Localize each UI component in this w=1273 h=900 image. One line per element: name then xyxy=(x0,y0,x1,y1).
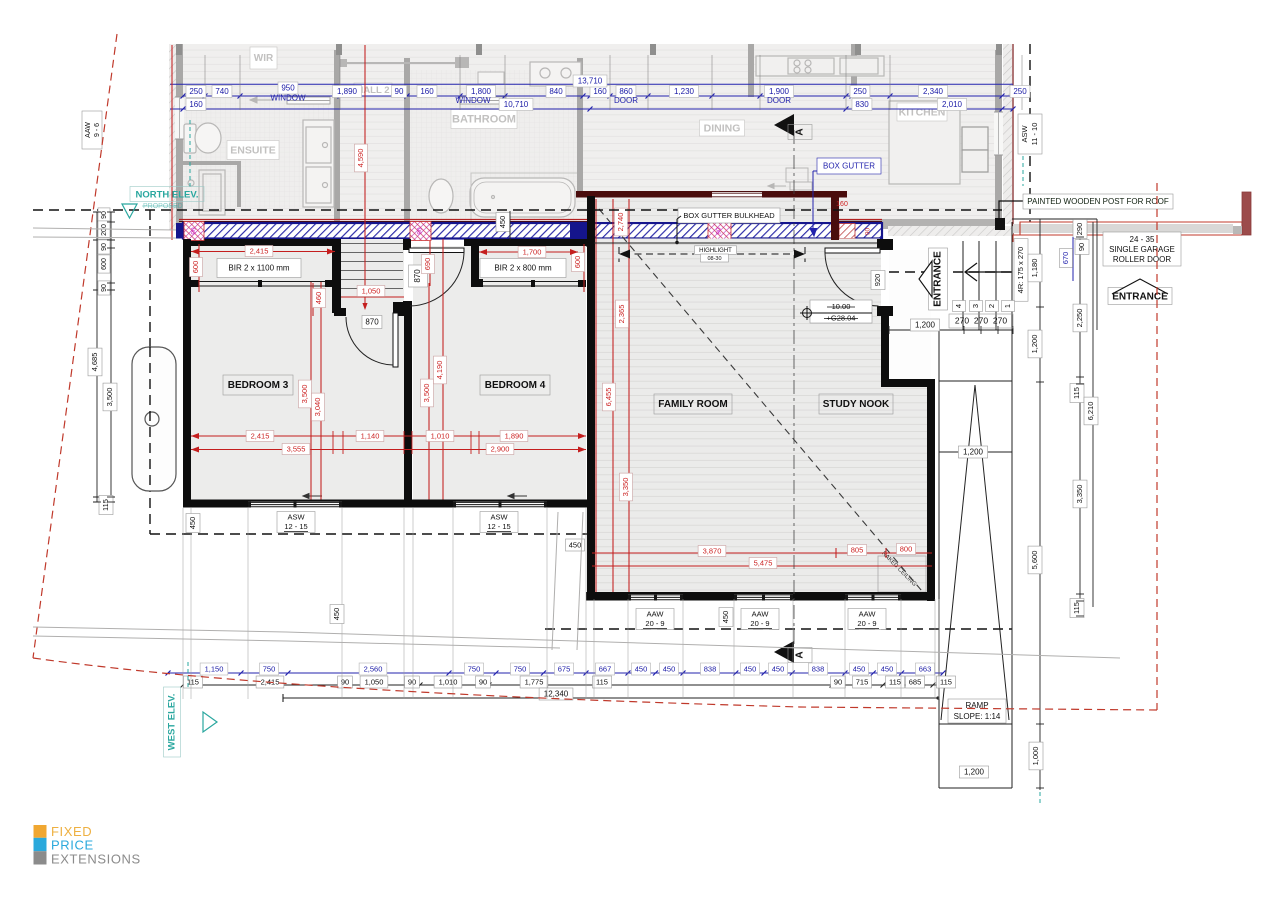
svg-text:3,350: 3,350 xyxy=(621,478,630,497)
svg-text:20 - 9: 20 - 9 xyxy=(645,619,664,628)
svg-text:950: 950 xyxy=(281,84,295,93)
svg-text:115: 115 xyxy=(889,677,901,686)
svg-text:BOX GUTTER: BOX GUTTER xyxy=(823,162,875,171)
svg-text:1,890: 1,890 xyxy=(505,431,524,440)
svg-text:450: 450 xyxy=(498,216,507,229)
svg-text:AAW: AAW xyxy=(859,609,877,618)
svg-text:PROPOSED: PROPOSED xyxy=(143,203,183,210)
svg-text:800: 800 xyxy=(900,544,913,553)
svg-text:90: 90 xyxy=(395,87,404,96)
svg-text:90: 90 xyxy=(101,211,108,219)
svg-text:1,180: 1,180 xyxy=(1030,259,1039,278)
svg-text:3,500: 3,500 xyxy=(300,385,309,404)
svg-text:450: 450 xyxy=(744,664,757,673)
svg-text:90: 90 xyxy=(479,677,487,686)
svg-text:20 - 9: 20 - 9 xyxy=(857,619,876,628)
svg-text:2,365: 2,365 xyxy=(617,305,626,324)
svg-text:840: 840 xyxy=(549,87,563,96)
svg-text:450: 450 xyxy=(332,608,341,621)
svg-text:670: 670 xyxy=(1061,252,1070,265)
svg-text:1,200: 1,200 xyxy=(964,768,985,777)
svg-text:450: 450 xyxy=(881,664,894,673)
svg-text:1,200: 1,200 xyxy=(963,448,984,457)
svg-text:90: 90 xyxy=(716,227,723,235)
svg-text:740: 740 xyxy=(215,87,229,96)
svg-text:2,415: 2,415 xyxy=(251,431,270,440)
svg-text:1,700: 1,700 xyxy=(523,247,542,256)
svg-text:663: 663 xyxy=(919,664,932,673)
svg-text:860: 860 xyxy=(619,87,633,96)
svg-text:250: 250 xyxy=(853,87,867,96)
svg-text:1,050: 1,050 xyxy=(365,677,384,686)
svg-text:450: 450 xyxy=(721,611,730,624)
svg-text:STUDY NOOK: STUDY NOOK xyxy=(823,399,890,410)
svg-text:90: 90 xyxy=(101,243,108,251)
svg-text:450: 450 xyxy=(635,664,648,673)
svg-text:DINING: DINING xyxy=(704,122,741,134)
svg-text:EXTENSIONS: EXTENSIONS xyxy=(51,851,141,866)
svg-text:08-30: 08-30 xyxy=(707,256,721,262)
svg-text:115: 115 xyxy=(1072,387,1081,399)
svg-text:750: 750 xyxy=(514,664,527,673)
svg-text:A: A xyxy=(795,128,806,135)
svg-text:BIR 2 x 800 mm: BIR 2 x 800 mm xyxy=(494,264,552,273)
svg-text:600: 600 xyxy=(191,261,200,274)
svg-text:450: 450 xyxy=(772,664,785,673)
svg-text:DOOR: DOOR xyxy=(614,96,638,105)
svg-text:830: 830 xyxy=(855,100,869,109)
svg-text:WEST ELEV.: WEST ELEV. xyxy=(167,694,178,751)
svg-text:20 - 9: 20 - 9 xyxy=(750,619,769,628)
svg-text:2,900: 2,900 xyxy=(491,444,510,453)
svg-text:11 - 10: 11 - 10 xyxy=(1030,123,1039,146)
svg-text:685: 685 xyxy=(909,677,922,686)
svg-text:715: 715 xyxy=(856,677,869,686)
svg-text:1,800: 1,800 xyxy=(471,87,492,96)
svg-text:3: 3 xyxy=(971,304,980,308)
svg-text:1,010: 1,010 xyxy=(439,677,458,686)
svg-text:200: 200 xyxy=(101,224,108,236)
svg-text:BEDROOM 4: BEDROOM 4 xyxy=(485,380,546,391)
svg-text:1,900: 1,900 xyxy=(769,87,790,96)
svg-text:BIR 2 x 1100 mm: BIR 2 x 1100 mm xyxy=(228,264,290,273)
svg-text:270: 270 xyxy=(993,315,1007,325)
svg-text:690: 690 xyxy=(423,258,432,271)
svg-text:90: 90 xyxy=(865,228,872,236)
svg-text:12,340: 12,340 xyxy=(544,690,569,699)
svg-text:115: 115 xyxy=(940,677,952,686)
svg-text:805: 805 xyxy=(851,545,864,554)
svg-text:A: A xyxy=(795,651,806,658)
svg-text:4,190: 4,190 xyxy=(435,361,444,380)
svg-text:ENTRANCE: ENTRANCE xyxy=(1112,292,1168,303)
svg-text:115: 115 xyxy=(101,499,110,511)
svg-text:160: 160 xyxy=(189,100,203,109)
svg-text:HIGHLIGHT: HIGHLIGHT xyxy=(699,248,732,254)
svg-text:460: 460 xyxy=(314,292,323,305)
svg-text:ROLLER DOOR: ROLLER DOOR xyxy=(1113,255,1171,264)
svg-text:ASW: ASW xyxy=(490,512,508,521)
svg-text:115: 115 xyxy=(1072,602,1081,614)
svg-text:5,600: 5,600 xyxy=(1030,551,1039,570)
svg-text:90: 90 xyxy=(834,677,842,686)
svg-text:4,590: 4,590 xyxy=(356,149,365,168)
svg-text:PRICE: PRICE xyxy=(51,838,94,853)
svg-text:750: 750 xyxy=(263,664,276,673)
svg-text:920: 920 xyxy=(873,274,882,287)
svg-text:90: 90 xyxy=(101,284,108,292)
svg-text:12 - 15: 12 - 15 xyxy=(284,522,307,531)
svg-text:3,555: 3,555 xyxy=(287,444,306,453)
svg-text:3,870: 3,870 xyxy=(703,546,722,555)
svg-text:1,230: 1,230 xyxy=(674,87,695,96)
svg-text:160: 160 xyxy=(420,87,434,96)
svg-text:3,500: 3,500 xyxy=(105,388,114,407)
svg-text:WINDOW: WINDOW xyxy=(455,96,491,105)
svg-text:1,050: 1,050 xyxy=(362,286,381,295)
svg-text:90: 90 xyxy=(408,677,416,686)
svg-text:2,415: 2,415 xyxy=(250,246,269,255)
svg-text:838: 838 xyxy=(704,664,717,673)
svg-text:1,010: 1,010 xyxy=(431,431,450,440)
svg-text:870: 870 xyxy=(365,318,379,327)
svg-text:PAINTED WOODEN POST FOR ROOF: PAINTED WOODEN POST FOR ROOF xyxy=(1027,197,1169,206)
svg-text:2,740: 2,740 xyxy=(616,213,625,232)
svg-text:2,340: 2,340 xyxy=(923,87,944,96)
svg-text:2,250: 2,250 xyxy=(1075,309,1084,328)
svg-text:BEDROOM 3: BEDROOM 3 xyxy=(228,380,289,391)
svg-text:115: 115 xyxy=(187,677,199,686)
svg-text:24 - 35: 24 - 35 xyxy=(1130,235,1155,244)
svg-text:675: 675 xyxy=(558,664,571,673)
svg-text:1,140: 1,140 xyxy=(361,431,380,440)
svg-text:90: 90 xyxy=(191,227,198,235)
svg-text:1,200: 1,200 xyxy=(915,321,936,330)
svg-text:2: 2 xyxy=(987,304,996,308)
svg-text:250: 250 xyxy=(1013,87,1027,96)
svg-text:ASW: ASW xyxy=(1020,125,1029,143)
svg-text:10.00: 10.00 xyxy=(832,302,851,311)
svg-text:2,560: 2,560 xyxy=(364,664,383,673)
svg-text:1,150: 1,150 xyxy=(205,664,224,673)
svg-text:4R: 175 x 270: 4R: 175 x 270 xyxy=(1016,247,1025,294)
svg-text:WINDOW: WINDOW xyxy=(270,94,306,103)
svg-text:290: 290 xyxy=(1075,223,1084,236)
svg-text:5,475: 5,475 xyxy=(754,558,773,567)
svg-text:1,775: 1,775 xyxy=(525,677,544,686)
svg-text:6,455: 6,455 xyxy=(604,388,613,407)
svg-text:13,710: 13,710 xyxy=(578,77,603,86)
svg-text:2,010: 2,010 xyxy=(942,100,963,109)
svg-text:FIXED: FIXED xyxy=(51,824,92,839)
svg-text:+G28.04: +G28.04 xyxy=(827,313,856,322)
svg-text:450: 450 xyxy=(663,664,676,673)
svg-text:AAW: AAW xyxy=(647,609,665,618)
svg-text:ASW: ASW xyxy=(287,512,305,521)
svg-text:838: 838 xyxy=(812,664,825,673)
svg-text:6,210: 6,210 xyxy=(1086,402,1095,421)
svg-text:9 - 6: 9 - 6 xyxy=(94,123,101,137)
svg-text:ENSUITE: ENSUITE xyxy=(230,144,276,156)
svg-text:600: 600 xyxy=(101,258,108,270)
svg-text:1,200: 1,200 xyxy=(1030,335,1039,354)
svg-text:450: 450 xyxy=(569,540,582,549)
svg-text:160: 160 xyxy=(836,201,848,208)
svg-text:ENTRANCE: ENTRANCE xyxy=(933,251,944,307)
svg-text:3,350: 3,350 xyxy=(1075,485,1084,504)
svg-text:BOX GUTTER BULKHEAD: BOX GUTTER BULKHEAD xyxy=(683,211,775,220)
svg-text:1,890: 1,890 xyxy=(337,87,358,96)
svg-text:AAW: AAW xyxy=(85,122,92,138)
svg-text:90: 90 xyxy=(1077,243,1086,251)
svg-text:4: 4 xyxy=(954,304,963,308)
svg-text:4,685: 4,685 xyxy=(90,353,99,372)
svg-text:3,500: 3,500 xyxy=(422,384,431,403)
svg-text:1,000: 1,000 xyxy=(1031,747,1040,766)
svg-text:1: 1 xyxy=(1003,304,1012,308)
svg-text:870: 870 xyxy=(413,269,422,283)
svg-text:DOOR: DOOR xyxy=(767,96,791,105)
svg-text:SINGLE GARAGE: SINGLE GARAGE xyxy=(1109,245,1175,254)
svg-text:AAW: AAW xyxy=(752,609,770,618)
svg-text:90: 90 xyxy=(417,227,424,235)
svg-text:WIR: WIR xyxy=(254,53,274,64)
svg-text:160: 160 xyxy=(593,87,607,96)
svg-text:450: 450 xyxy=(188,517,197,530)
svg-text:12 - 15: 12 - 15 xyxy=(487,522,510,531)
svg-text:667: 667 xyxy=(599,664,612,673)
svg-text:600: 600 xyxy=(573,256,582,269)
svg-text:750: 750 xyxy=(468,664,481,673)
svg-text:SLOPE: 1:14: SLOPE: 1:14 xyxy=(954,712,1001,721)
svg-text:250: 250 xyxy=(189,87,203,96)
svg-text:FAMILY ROOM: FAMILY ROOM xyxy=(658,399,727,410)
svg-text:BATHROOM: BATHROOM xyxy=(452,113,516,125)
svg-text:115: 115 xyxy=(596,677,608,686)
svg-text:270: 270 xyxy=(974,315,988,325)
svg-text:270: 270 xyxy=(955,315,969,325)
svg-text:NORTH ELEV.: NORTH ELEV. xyxy=(136,190,199,201)
svg-text:3,040: 3,040 xyxy=(313,398,322,417)
svg-text:450: 450 xyxy=(853,664,866,673)
svg-text:10,710: 10,710 xyxy=(504,100,529,109)
